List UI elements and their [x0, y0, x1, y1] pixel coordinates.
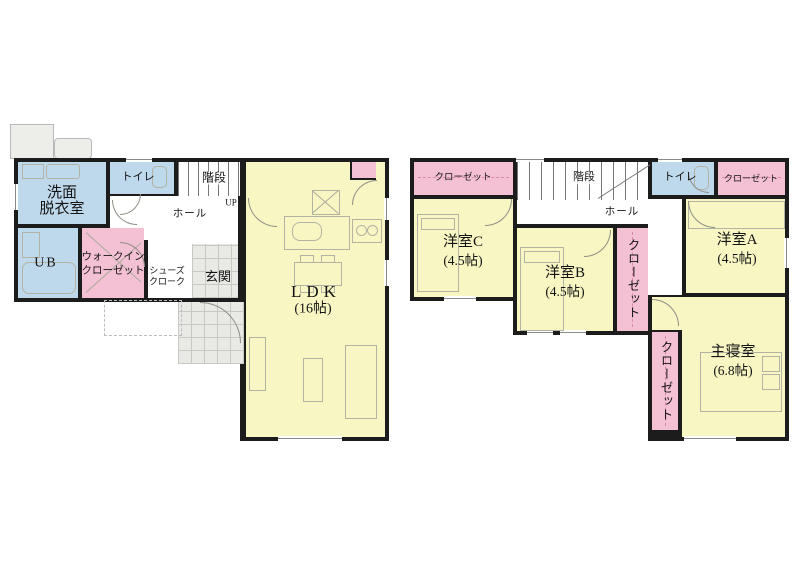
room-b-label-name: 洋室B	[545, 266, 585, 282]
master-label-size: (6.8帖)	[713, 364, 752, 378]
stairs-2f-label: 階段	[572, 172, 596, 184]
room-a-window	[784, 238, 789, 268]
wash-basin	[46, 164, 80, 179]
dining-chair-2	[321, 255, 335, 263]
bed-room-b-pillow	[524, 251, 560, 263]
room-c-label-size: (4.5帖)	[443, 254, 482, 268]
ldk-south-window	[278, 436, 342, 441]
master-label-name: 主寝室	[710, 345, 755, 361]
room-c-label-name: 洋室C	[443, 235, 483, 251]
hall-2f-corridor	[648, 199, 682, 295]
wic-label-1: ウォークイン	[82, 251, 145, 262]
stairs-2f-window	[516, 157, 544, 162]
tv-board	[249, 337, 266, 391]
entrance-label: 玄関	[205, 270, 231, 284]
room-b-label-size: (4.5帖)	[545, 285, 584, 299]
shoes-closet-label-1: シューズ	[149, 266, 185, 275]
hall-2f-label: ホール	[605, 206, 640, 217]
washing-machine	[22, 164, 44, 179]
toilet-2f-label: トイレ	[664, 172, 697, 184]
washroom-window	[13, 184, 18, 210]
closet-mid-label: クローゼット	[624, 239, 643, 320]
water-heater-tank	[10, 124, 54, 159]
approach-outline	[104, 300, 182, 336]
up-label: UP	[225, 198, 237, 207]
ub-vanity	[22, 232, 40, 258]
wic-label-2: クローゼット	[82, 265, 145, 276]
dining-chair-1	[300, 255, 314, 263]
hall-1f-label: ホール	[173, 208, 208, 219]
bed-master-pillow-1	[762, 356, 780, 372]
closet-master-label: クローゼット	[657, 341, 676, 422]
ldk-label-size: (16帖)	[294, 303, 331, 318]
sofa	[345, 345, 377, 419]
stove-burner-1	[356, 225, 367, 236]
coffee-table	[303, 358, 323, 402]
washroom-label-2: 脱衣室	[39, 202, 84, 218]
ldk-east-window-2	[384, 260, 389, 286]
closet-c-label: クローゼット	[434, 174, 491, 184]
bed-master-pillow-2	[762, 374, 780, 390]
stairs-1f-label: 階段	[201, 172, 227, 185]
closet-a-label: クローゼット	[724, 174, 778, 183]
toilet-1f-window	[126, 157, 152, 162]
ub-label: UB	[34, 257, 57, 272]
stove-burner-2	[367, 225, 378, 236]
floor-plan-canvas: 洗面 脱衣室 トイレ 階段 UP ホール UB ウォークイン クローゼット シュ…	[0, 0, 800, 566]
toilet-1f-label: トイレ	[122, 172, 155, 184]
room-a-label-name: 洋室A	[717, 233, 758, 249]
ldk-pantry	[350, 162, 376, 180]
toilet-2f-window	[658, 157, 682, 162]
bed-room-c-pillow	[421, 218, 455, 230]
ldk-label-name: LDK	[291, 283, 341, 301]
washroom-label-1: 洗面	[47, 186, 77, 202]
kitchen-sink	[292, 222, 322, 241]
water-heater-unit	[54, 138, 92, 159]
room-c-window	[444, 296, 476, 301]
master-window	[684, 436, 736, 441]
ldk-east-window-1	[384, 198, 389, 220]
room-a-label-size: (4.5帖)	[717, 252, 756, 266]
shoes-closet-label-2: クローク	[149, 277, 185, 286]
